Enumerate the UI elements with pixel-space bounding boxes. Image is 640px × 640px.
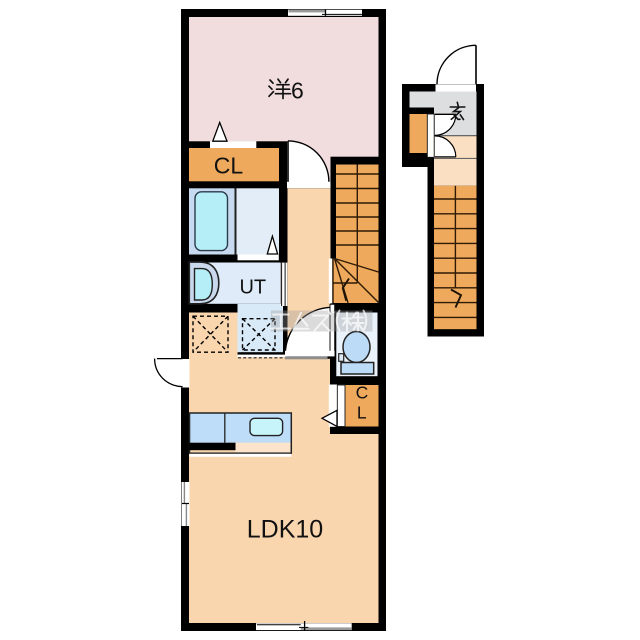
svg-text:UT: UT: [239, 277, 266, 299]
svg-text:6: 6: [291, 77, 304, 103]
svg-text:L: L: [357, 403, 367, 423]
svg-text:LDK10: LDK10: [247, 516, 323, 544]
svg-text:C: C: [356, 383, 369, 403]
svg-text:CL: CL: [214, 152, 244, 178]
